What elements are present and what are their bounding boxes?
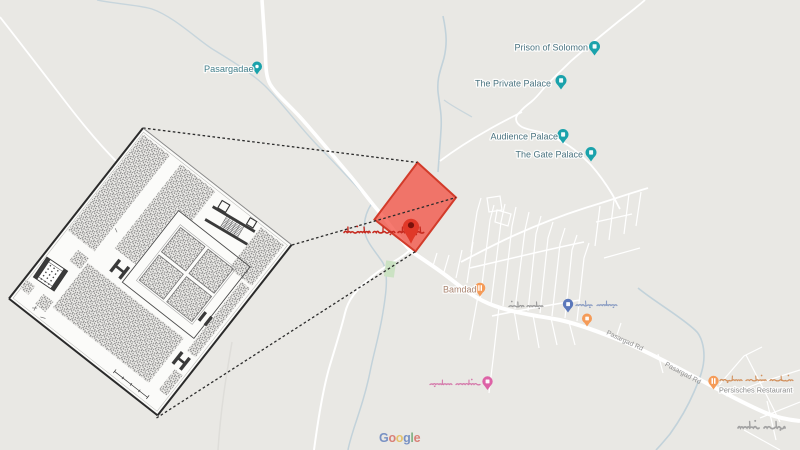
svg-text:Persisches Restaurant: Persisches Restaurant [719, 386, 792, 395]
svg-text:Bamdad: Bamdad [443, 285, 477, 295]
svg-text:e: e [414, 431, 421, 445]
svg-text:Pasargadae: Pasargadae [204, 64, 254, 74]
svg-text:Audience Palace: Audience Palace [490, 132, 558, 142]
svg-text:The Private Palace: The Private Palace [475, 79, 551, 89]
svg-text:G: G [379, 431, 389, 445]
svg-text:Prison of Solomon: Prison of Solomon [514, 43, 588, 53]
svg-text:The Gate Palace: The Gate Palace [515, 150, 583, 160]
